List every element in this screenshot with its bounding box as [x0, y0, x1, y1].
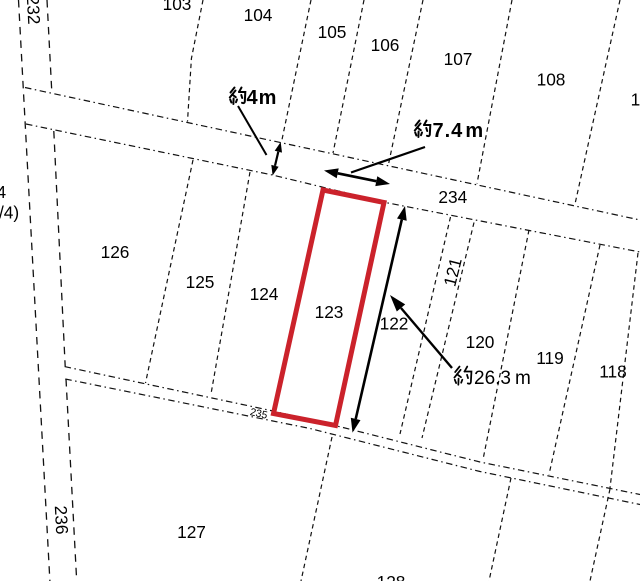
- svg-text:104: 104: [244, 5, 273, 25]
- svg-text:7.4m: 7.4m: [433, 120, 485, 142]
- svg-text:103: 103: [163, 0, 192, 14]
- svg-text:118: 118: [599, 362, 627, 382]
- svg-text:106: 106: [371, 35, 400, 55]
- svg-text:128: 128: [377, 572, 406, 581]
- svg-text:119: 119: [536, 348, 564, 368]
- svg-text:107: 107: [444, 49, 473, 69]
- svg-text:109: 109: [631, 90, 640, 110]
- svg-text:4: 4: [0, 182, 7, 202]
- svg-text:123: 123: [315, 302, 344, 322]
- svg-text:232: 232: [23, 0, 44, 25]
- svg-text:105: 105: [318, 22, 347, 42]
- svg-text:236: 236: [51, 505, 72, 535]
- svg-text:125: 125: [186, 272, 215, 292]
- svg-text:108: 108: [537, 70, 566, 90]
- svg-text:122: 122: [380, 314, 409, 334]
- svg-text:26.3m: 26.3m: [474, 368, 531, 389]
- svg-text:/4): /4): [0, 203, 19, 223]
- svg-text:234: 234: [438, 187, 467, 207]
- svg-text:4m: 4m: [247, 87, 278, 109]
- svg-text:124: 124: [250, 284, 279, 304]
- svg-text:126: 126: [101, 242, 130, 262]
- svg-text:120: 120: [466, 332, 495, 352]
- svg-text:127: 127: [177, 522, 206, 542]
